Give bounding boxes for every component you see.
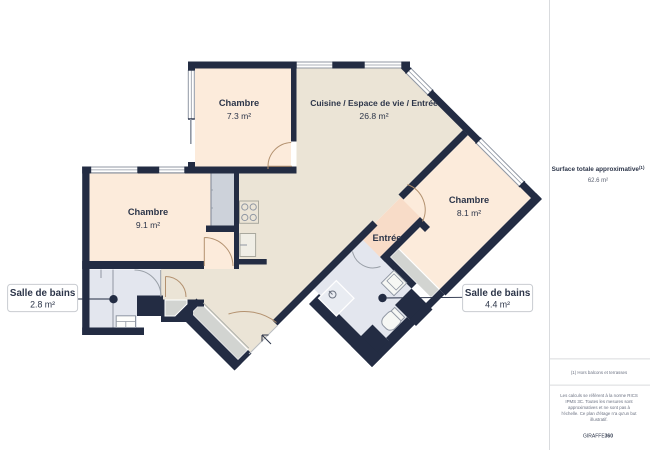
svg-text:4.4 m²: 4.4 m² bbox=[485, 299, 510, 309]
svg-text:26.8 m²: 26.8 m² bbox=[359, 111, 388, 121]
svg-text:(1) Hors balcons et terrasses: (1) Hors balcons et terrasses bbox=[571, 370, 628, 375]
svg-text:Salle de bains: Salle de bains bbox=[465, 288, 531, 299]
svg-text:8.1 m²: 8.1 m² bbox=[457, 208, 481, 218]
svg-text:Les calculs se réfèrent à la n: Les calculs se réfèrent à la norme RICS bbox=[560, 393, 638, 398]
svg-text:Entrée: Entrée bbox=[373, 233, 402, 243]
svg-text:62.6 m²: 62.6 m² bbox=[588, 178, 608, 184]
svg-text:l'échelle. Ce plan d'étage n'a: l'échelle. Ce plan d'étage n'a qu'un but bbox=[562, 411, 638, 416]
svg-text:illustratif.: illustratif. bbox=[590, 417, 607, 422]
svg-text:2.8 m²: 2.8 m² bbox=[30, 299, 55, 309]
svg-text:approximatives et ne sont pas: approximatives et ne sont pas à bbox=[568, 405, 631, 410]
svg-text:Surface totale approximative(1: Surface totale approximative(1) bbox=[552, 165, 645, 174]
svg-text:7.3 m²: 7.3 m² bbox=[227, 111, 251, 121]
svg-text:Chambre: Chambre bbox=[219, 98, 259, 108]
svg-text:Cuisine / Espace de vie / Entr: Cuisine / Espace de vie / Entrée bbox=[310, 98, 438, 108]
svg-text:Chambre: Chambre bbox=[449, 195, 489, 205]
svg-text:Chambre: Chambre bbox=[128, 207, 168, 217]
svg-text:GIRAFFE360: GIRAFFE360 bbox=[583, 434, 613, 440]
svg-text:9.1 m²: 9.1 m² bbox=[136, 220, 160, 230]
svg-text:Salle de bains: Salle de bains bbox=[10, 288, 76, 299]
svg-text:IPMS 3C. Toutes les mesures so: IPMS 3C. Toutes les mesures sont bbox=[565, 399, 633, 404]
